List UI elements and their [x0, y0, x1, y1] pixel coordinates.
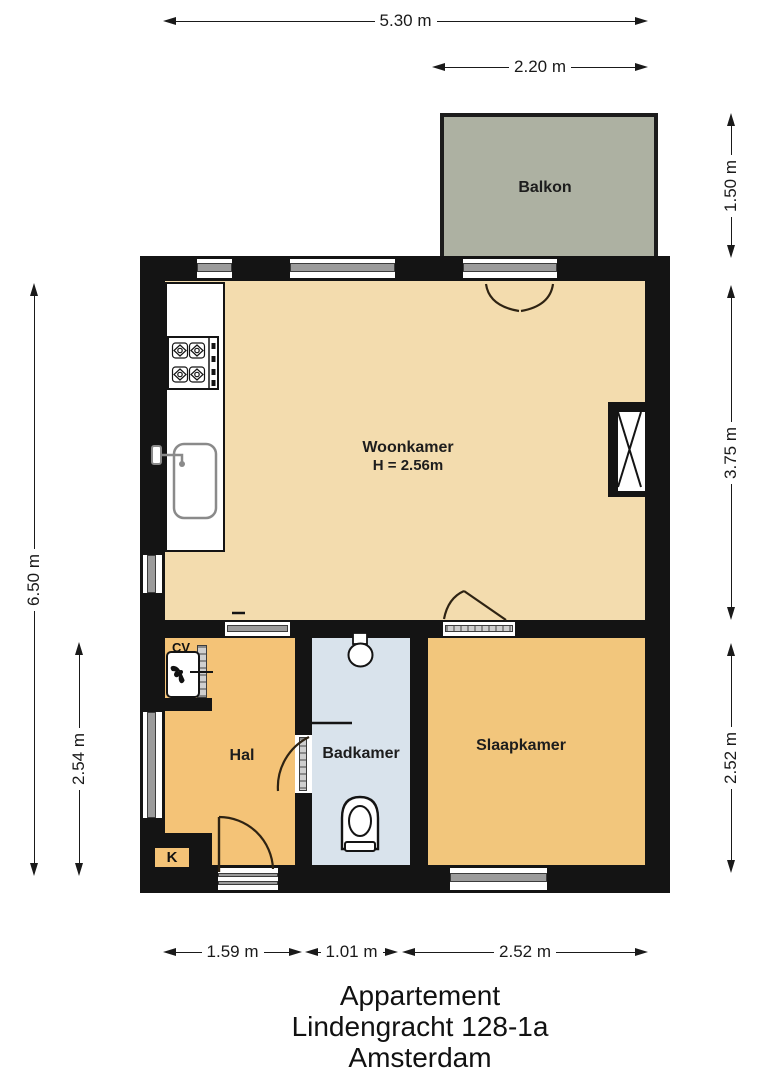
hal-label: Hal [202, 746, 282, 765]
wall-hal-badkamer-lower [295, 793, 312, 865]
floor-plan-canvas: Balkon Woonkamer H = 2.56m Hal Badkamer … [0, 0, 764, 1080]
dim-balcony-depth: 1.50 m [722, 113, 740, 258]
woonkamer-name: Woonkamer [308, 438, 508, 457]
woonkamer-height-note: H = 2.56m [308, 457, 508, 475]
plan-title-line2: Lindengracht 128-1a [140, 1011, 700, 1042]
dim-hal-depth: 2.54 m [70, 642, 88, 876]
wall-hal-badkamer-upper [295, 638, 312, 735]
woonkamer-label: Woonkamer H = 2.56m [308, 438, 508, 475]
interior-transom-glass [227, 625, 288, 632]
wall-badkamer-slaapkamer [410, 638, 428, 865]
dim-top-total: 5.30 m [163, 12, 648, 30]
plan-title-line1: Appartement [140, 980, 700, 1011]
entry-door-threshold-2 [218, 881, 278, 885]
window-top-a-glass [197, 263, 232, 272]
balcony-door-glass [463, 263, 557, 272]
entry-door-opening [218, 868, 278, 890]
dim-hal-width: 1.59 m [163, 943, 302, 961]
window-slaapkamer-glass [450, 873, 547, 882]
window-left-1-glass [147, 555, 156, 593]
plan-title-line3: Amsterdam [140, 1042, 700, 1073]
dim-woonkamer-depth: 3.75 m [722, 285, 740, 620]
kitchen-counter [165, 282, 225, 552]
wall-cv-closet-bottom [140, 698, 212, 711]
slaapkamer-door-leaf [445, 625, 513, 632]
k-label: K [155, 849, 189, 866]
dim-balcony-width: 2.20 m [432, 58, 648, 76]
dim-badkamer-width: 1.01 m [305, 943, 398, 961]
shaft-x-box [616, 410, 647, 493]
window-top-b-glass [290, 263, 395, 272]
badkamer-door-leaf [299, 737, 307, 791]
wall-right [645, 256, 670, 893]
balkon-label: Balkon [445, 178, 645, 197]
window-left-2-glass [147, 712, 156, 818]
dim-left-total: 6.50 m [25, 283, 43, 876]
badkamer-label: Badkamer [311, 744, 411, 763]
plan-title: Appartement Lindengracht 128-1a Amsterda… [140, 980, 700, 1073]
dim-slaapkamer-depth: 2.52 m [722, 643, 740, 873]
cv-boiler [166, 651, 200, 698]
entry-door-threshold [218, 873, 278, 877]
slaapkamer-label: Slaapkamer [441, 736, 601, 755]
cv-label: CV [163, 640, 199, 655]
dim-slaapkamer-width: 2.52 m [402, 943, 648, 961]
